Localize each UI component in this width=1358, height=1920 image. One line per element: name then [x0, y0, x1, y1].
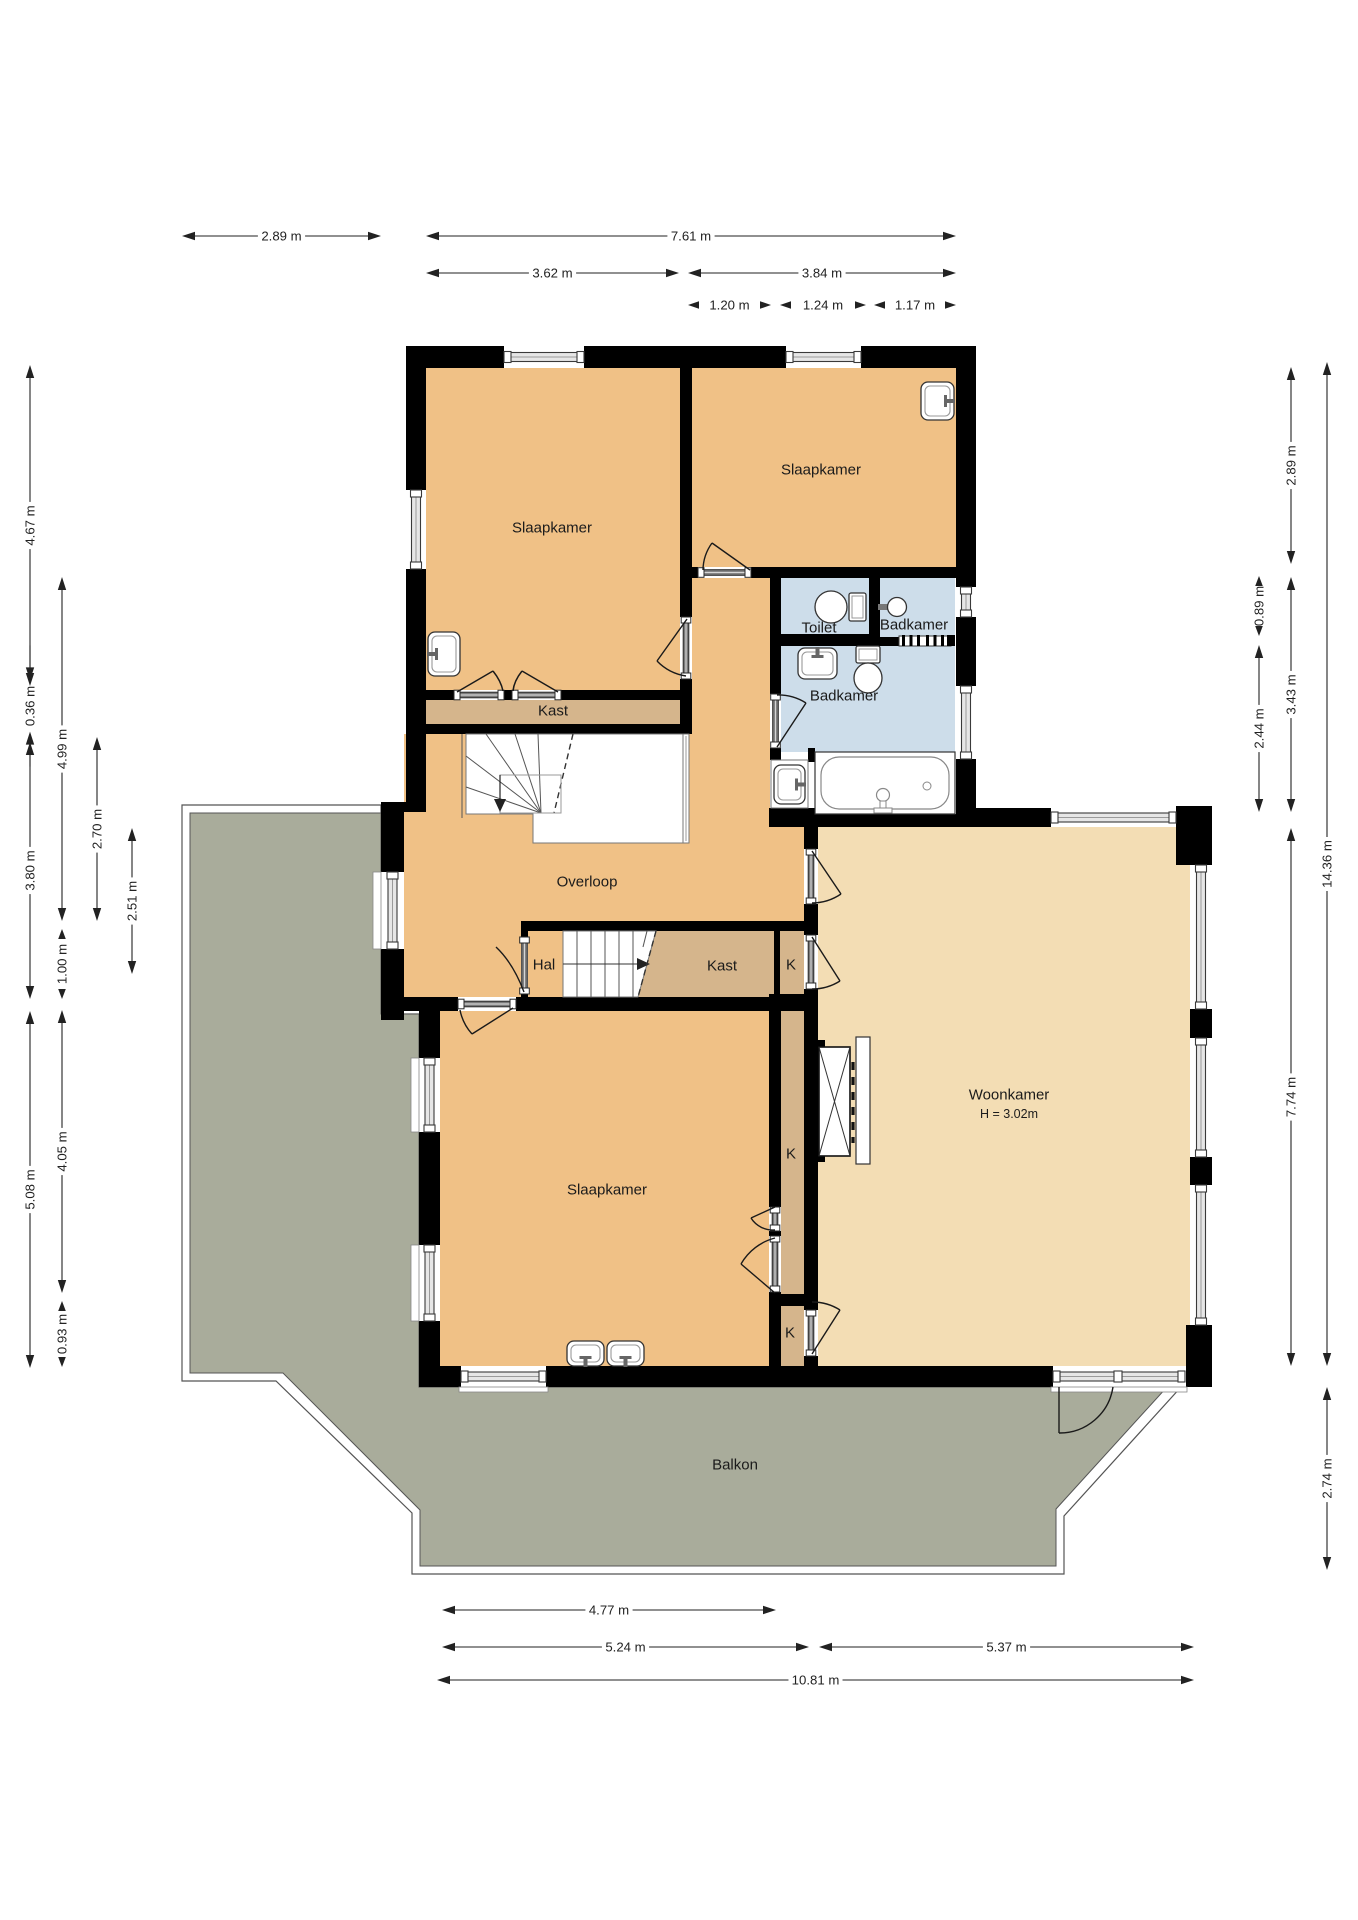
svg-text:Kast: Kast [538, 703, 569, 720]
svg-text:7.74 m: 7.74 m [1284, 1077, 1299, 1117]
svg-text:5.08 m: 5.08 m [23, 1169, 38, 1209]
svg-text:Hal: Hal [533, 957, 556, 974]
svg-text:1.17 m: 1.17 m [895, 298, 935, 313]
svg-text:Badkamer: Badkamer [880, 617, 948, 634]
svg-text:4.67 m: 4.67 m [23, 505, 38, 545]
svg-text:Badkamer: Badkamer [810, 688, 878, 705]
svg-text:5.24 m: 5.24 m [605, 1640, 645, 1655]
svg-text:5.37 m: 5.37 m [986, 1640, 1026, 1655]
svg-text:4.99 m: 4.99 m [55, 729, 70, 769]
svg-text:Balkon: Balkon [712, 1457, 758, 1474]
svg-text:3.43 m: 3.43 m [1284, 674, 1299, 714]
svg-text:2.44 m: 2.44 m [1252, 708, 1267, 748]
svg-text:2.74 m: 2.74 m [1320, 1458, 1335, 1498]
svg-text:Kast: Kast [707, 958, 738, 975]
svg-text:H = 3.02m: H = 3.02m [980, 1107, 1038, 1121]
svg-text:Overloop: Overloop [557, 874, 618, 891]
svg-text:3.84 m: 3.84 m [802, 266, 842, 281]
svg-text:1.24 m: 1.24 m [803, 298, 843, 313]
svg-text:Woonkamer: Woonkamer [969, 1087, 1050, 1104]
svg-text:2.89 m: 2.89 m [1284, 445, 1299, 485]
svg-text:7.61 m: 7.61 m [671, 229, 711, 244]
svg-text:0.36 m: 0.36 m [23, 686, 38, 726]
svg-text:1.00 m: 1.00 m [55, 944, 70, 984]
svg-text:0.93 m: 0.93 m [55, 1314, 70, 1354]
svg-text:10.81 m: 10.81 m [792, 1673, 840, 1688]
svg-text:3.80 m: 3.80 m [23, 850, 38, 890]
svg-text:Slaapkamer: Slaapkamer [781, 462, 861, 479]
svg-text:2.89 m: 2.89 m [261, 229, 301, 244]
svg-text:2.70 m: 2.70 m [90, 809, 105, 849]
svg-text:1.20 m: 1.20 m [709, 298, 749, 313]
svg-text:2.51 m: 2.51 m [125, 881, 140, 921]
svg-text:0.89 m: 0.89 m [1252, 586, 1267, 626]
svg-text:14.36 m: 14.36 m [1320, 840, 1335, 888]
svg-text:Toilet: Toilet [801, 620, 837, 637]
svg-text:Slaapkamer: Slaapkamer [512, 520, 592, 537]
svg-text:K: K [785, 1325, 795, 1342]
svg-text:K: K [786, 1146, 796, 1163]
svg-text:3.62 m: 3.62 m [532, 266, 572, 281]
svg-text:4.05 m: 4.05 m [55, 1131, 70, 1171]
svg-text:4.77 m: 4.77 m [589, 1603, 629, 1618]
svg-text:K: K [786, 957, 796, 974]
svg-text:Slaapkamer: Slaapkamer [567, 1182, 647, 1199]
